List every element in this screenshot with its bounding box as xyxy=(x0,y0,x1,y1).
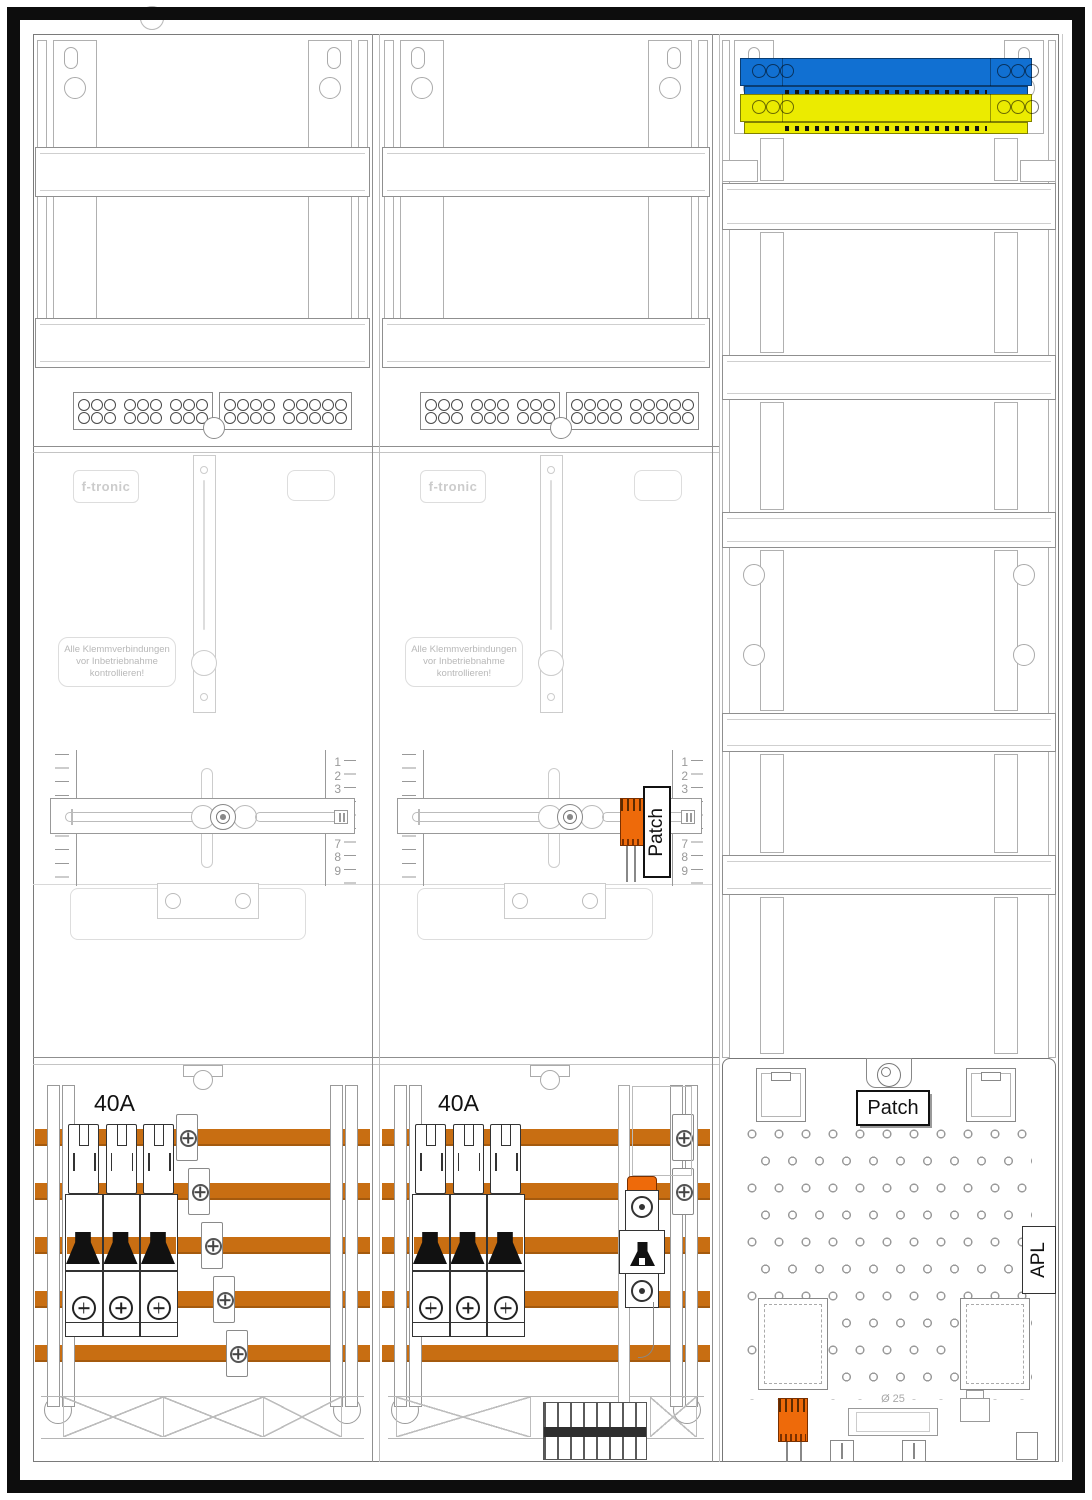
din-rail xyxy=(35,147,370,197)
terminal-group xyxy=(283,399,347,424)
diameter-label: Ø 25 xyxy=(848,1393,938,1406)
ruler-number: 3 xyxy=(674,783,688,796)
patch-label-apl-panel: Patch xyxy=(856,1090,930,1126)
busbar-terminal xyxy=(213,1276,235,1323)
terminal-hole xyxy=(263,399,275,411)
busbar-terminal xyxy=(188,1168,210,1215)
pe-terminal-bar-lip xyxy=(744,122,1028,134)
breaker-pole-divider xyxy=(102,1194,104,1337)
truss-post xyxy=(341,1397,342,1437)
ruler-number: 3 xyxy=(327,783,341,796)
rail-hole xyxy=(659,77,681,99)
pe-terminal-bar-dashes xyxy=(785,126,987,131)
connector-stripes xyxy=(779,1399,807,1412)
pe-terminal-bar-cap-line xyxy=(990,94,991,122)
warning-line: Alle Klemmverbindungen xyxy=(411,644,517,656)
terminal-hole xyxy=(224,412,236,424)
logo-box-field2: f-tronic xyxy=(420,470,486,503)
jaw-slot xyxy=(117,1124,127,1146)
terminal-hole xyxy=(471,399,483,411)
jaw-notch xyxy=(73,1153,75,1171)
right-margin-line xyxy=(1062,34,1063,1462)
device-screw-dot xyxy=(639,1204,645,1210)
section-line xyxy=(33,1057,719,1058)
slot-hole-small xyxy=(200,693,208,701)
breaker-pole-divider xyxy=(139,1194,141,1337)
jaw-notch xyxy=(495,1153,497,1171)
terminal-group xyxy=(425,399,463,424)
terminal-group xyxy=(224,399,275,424)
pe-terminal-bar-hole xyxy=(1011,100,1025,114)
neutral-terminal-bar-hole xyxy=(1025,64,1039,78)
brand-logo: f-tronic xyxy=(82,479,131,494)
slot-hole-big xyxy=(191,650,217,676)
terminal-hole xyxy=(309,412,321,424)
terminal-screw xyxy=(192,1184,209,1201)
corner-bracket xyxy=(1016,1432,1038,1460)
tab-hole xyxy=(193,1070,213,1090)
patch-label-text: Patch xyxy=(867,1097,918,1120)
terminal-hole xyxy=(451,399,463,411)
rail-slot xyxy=(327,47,341,69)
column-divider xyxy=(372,34,373,1462)
terminal-hole xyxy=(610,399,622,411)
jaw-notch xyxy=(94,1153,96,1171)
cabinet-drawing: f-tronic Alle Klemmverbindungen vor Inbe… xyxy=(0,0,1092,1500)
terminal-hole xyxy=(237,399,249,411)
pe-terminal-bar-hole xyxy=(752,100,766,114)
small-box xyxy=(960,1398,990,1422)
ruler-number: 8 xyxy=(674,851,688,864)
breaker-line xyxy=(65,1322,178,1323)
slider-circle xyxy=(233,805,257,829)
cap-line xyxy=(339,813,341,822)
mounting-rail xyxy=(760,138,784,181)
device-toggle-notch xyxy=(639,1258,645,1265)
mounting-rail xyxy=(760,402,784,510)
rail-hole xyxy=(64,77,86,99)
terminal-hole xyxy=(630,399,642,411)
bracket-hole xyxy=(235,893,251,909)
busbar-terminal xyxy=(176,1114,198,1161)
ruler-number: 7 xyxy=(674,838,688,851)
ruler-number: 1 xyxy=(327,756,341,769)
mounting-rail xyxy=(760,754,784,853)
din-rail xyxy=(722,855,1056,895)
slider-circle xyxy=(580,805,604,829)
terminal-hole xyxy=(263,412,275,424)
apl-label-text: APL xyxy=(1028,1242,1050,1278)
jaw-slot xyxy=(501,1124,511,1146)
terminal-hole xyxy=(137,412,149,424)
terminal-hole xyxy=(530,412,542,424)
column-divider xyxy=(379,34,380,1462)
section-line xyxy=(33,446,719,447)
device-screw-dot xyxy=(639,1288,645,1294)
slot-hole-small xyxy=(547,466,555,474)
terminal-group xyxy=(571,399,622,424)
terminal-hole xyxy=(682,412,694,424)
terminal-screw xyxy=(180,1130,197,1147)
rail-hole xyxy=(319,77,341,99)
pe-terminal-bar-hole xyxy=(780,100,794,114)
ruler-number: 9 xyxy=(674,865,688,878)
mounting-rail xyxy=(994,897,1018,1054)
jaw-notch xyxy=(420,1153,422,1171)
rail-slot xyxy=(667,47,681,69)
logo-box-field1: f-tronic xyxy=(73,470,139,503)
warning-line: vor Inbetriebnahme xyxy=(76,656,158,668)
busbar-terminal xyxy=(201,1222,223,1269)
tab-hole xyxy=(540,1070,560,1090)
bracket-hole xyxy=(512,893,528,909)
device-wire-box xyxy=(632,1086,692,1176)
breaker-pole-divider xyxy=(486,1194,488,1337)
terminal-hole xyxy=(597,399,609,411)
terminal-hole xyxy=(309,399,321,411)
terminal-hole xyxy=(250,412,262,424)
truss-post xyxy=(263,1397,264,1437)
breaker-screw xyxy=(109,1296,133,1320)
terminal-hole xyxy=(438,412,450,424)
terminal-hole xyxy=(322,399,334,411)
breaker-screw xyxy=(147,1296,171,1320)
cap-line xyxy=(690,813,692,822)
mounting-rail xyxy=(760,897,784,1054)
slider-tick xyxy=(71,809,73,825)
bracket-hole xyxy=(165,893,181,909)
truss-chord xyxy=(41,1438,364,1439)
slider-slot xyxy=(255,812,341,822)
pe-terminal-bar-hole xyxy=(766,100,780,114)
apl-label: APL xyxy=(1022,1226,1056,1294)
terminal-hole xyxy=(484,399,496,411)
terminal-block xyxy=(566,392,699,430)
din-rail xyxy=(722,183,1056,230)
slider-end-cap xyxy=(334,810,348,824)
warning-line: vor Inbetriebnahme xyxy=(423,656,505,668)
mounting-rail xyxy=(330,1085,343,1407)
connector-stripes xyxy=(621,799,643,811)
column-divider xyxy=(719,34,720,1462)
bracket-tab xyxy=(1020,160,1056,182)
terminal-hole xyxy=(250,399,262,411)
terminal-block xyxy=(219,392,352,430)
terminal-hole xyxy=(438,399,450,411)
terminal-screw xyxy=(676,1184,693,1201)
jaw-slot xyxy=(464,1124,474,1146)
terminal-hole xyxy=(656,399,668,411)
connector-wire xyxy=(626,846,628,882)
terminal-hole xyxy=(571,399,583,411)
slot-line xyxy=(550,480,552,630)
jaw-slot xyxy=(426,1124,436,1146)
terminal-hole xyxy=(335,412,347,424)
strip-screw-hole xyxy=(550,417,572,439)
connector-wire xyxy=(786,1442,788,1462)
jaw-slot xyxy=(154,1124,164,1146)
terminal-hole xyxy=(484,412,496,424)
neutral-terminal-bar-hole xyxy=(997,64,1011,78)
din-rail xyxy=(722,512,1056,548)
rail-hole xyxy=(743,564,765,586)
amp-rating-field1: 40A xyxy=(94,1090,194,1116)
patch-label-text: Patch xyxy=(646,808,668,857)
mounting-rail xyxy=(394,1085,407,1407)
deco-box-field1 xyxy=(287,470,335,501)
brand-logo: f-tronic xyxy=(429,479,478,494)
terminal-hole xyxy=(682,399,694,411)
terminal-group xyxy=(630,399,694,424)
panel-foot xyxy=(902,1440,926,1462)
terminal-group xyxy=(124,399,162,424)
busbar-terminal xyxy=(226,1330,248,1377)
square-opening-slot xyxy=(771,1072,791,1081)
warning-line: Alle Klemmverbindungen xyxy=(64,644,170,656)
terminal-hole xyxy=(124,412,136,424)
ruler-number: 2 xyxy=(674,770,688,783)
busbar xyxy=(382,1345,710,1362)
warning-box-field1: Alle Klemmverbindungen vor Inbetriebnahm… xyxy=(58,637,176,687)
ruler-number: 7 xyxy=(327,838,341,851)
foot-line xyxy=(913,1443,915,1459)
slot-hole-small xyxy=(200,466,208,474)
terminal-block xyxy=(420,392,560,430)
section-line xyxy=(33,452,719,453)
ruler-number: 9 xyxy=(327,865,341,878)
terminal-hole xyxy=(196,399,208,411)
terminal-hole xyxy=(497,399,509,411)
slider-circle xyxy=(220,814,226,820)
patch-connector xyxy=(620,798,644,846)
din-rail xyxy=(35,318,370,368)
terminal-strip xyxy=(543,1402,647,1460)
terminal-hole xyxy=(425,412,437,424)
truss-brace xyxy=(63,1397,163,1437)
terminal-hole xyxy=(497,412,509,424)
terminal-hole xyxy=(150,412,162,424)
terminal-hole xyxy=(322,412,334,424)
terminal-hole xyxy=(530,399,542,411)
bracket-hole xyxy=(582,893,598,909)
neutral-terminal-bar-hole xyxy=(752,64,766,78)
slider-slot-end xyxy=(140,6,164,30)
connector-wire xyxy=(634,846,636,882)
mounting-rail xyxy=(47,1085,60,1407)
mounting-rail xyxy=(760,232,784,353)
terminal-hole xyxy=(91,412,103,424)
terminal-group xyxy=(471,399,509,424)
rail-slot xyxy=(64,47,78,69)
terminal-hole xyxy=(91,399,103,411)
device-wire-arc xyxy=(638,1302,654,1358)
terminal-screw xyxy=(205,1238,222,1255)
jaw-notch xyxy=(148,1153,150,1171)
slider-slot xyxy=(412,812,544,822)
terminal-hole xyxy=(517,399,529,411)
terminal-hole xyxy=(137,399,149,411)
cap-line xyxy=(686,813,688,822)
jaw-notch xyxy=(132,1153,134,1171)
rail-hole xyxy=(411,77,433,99)
terminal-hole xyxy=(597,412,609,424)
section-line xyxy=(33,1064,719,1065)
terminal-hole xyxy=(296,399,308,411)
deco-box-field2 xyxy=(634,470,682,501)
connector-comb xyxy=(780,1434,806,1441)
jaw-slot xyxy=(79,1124,89,1146)
terminal-hole xyxy=(571,412,583,424)
terminal-hole xyxy=(150,399,162,411)
terminal-hole xyxy=(296,412,308,424)
strip-screw-hole xyxy=(203,417,225,439)
truss-post xyxy=(530,1397,531,1437)
slider-slot xyxy=(65,812,197,822)
connector-comb xyxy=(622,839,642,845)
terminal-hole xyxy=(656,412,668,424)
terminal-hole xyxy=(643,412,655,424)
terminal-hole xyxy=(283,412,295,424)
breaker-screw xyxy=(494,1296,518,1320)
jaw-notch xyxy=(458,1153,460,1171)
panel-handle-hook xyxy=(881,1067,891,1077)
neutral-terminal-bar-hole xyxy=(766,64,780,78)
terminal-hole xyxy=(104,399,116,411)
breaker-pole-divider xyxy=(449,1194,451,1337)
terminal-hole xyxy=(543,399,555,411)
pe-terminal-bar-hole xyxy=(1025,100,1039,114)
terminal-hole xyxy=(104,412,116,424)
rail-hole xyxy=(1013,564,1035,586)
terminal-hole xyxy=(471,412,483,424)
amp-rating-field2: 40A xyxy=(438,1090,538,1116)
breaker-clamp-jaw xyxy=(453,1124,484,1194)
slot-hole-big xyxy=(538,650,564,676)
breaker-line xyxy=(412,1270,525,1272)
terminal-hole xyxy=(335,399,347,411)
small-box-step xyxy=(966,1390,984,1399)
terminal-hole xyxy=(170,412,182,424)
terminal-hole xyxy=(584,412,596,424)
breaker-clamp-jaw xyxy=(68,1124,99,1194)
rail-slot xyxy=(411,47,425,69)
jaw-notch xyxy=(111,1153,113,1171)
terminal-hole xyxy=(224,399,236,411)
truss-post xyxy=(696,1397,697,1437)
terminal-block xyxy=(73,392,213,430)
terminal-hole xyxy=(78,412,90,424)
breaker-screw xyxy=(72,1296,96,1320)
mounting-rail xyxy=(345,1085,358,1407)
terminal-screw xyxy=(217,1292,234,1309)
jaw-notch xyxy=(516,1153,518,1171)
din-rail xyxy=(382,318,710,368)
ruler-number: 1 xyxy=(674,756,688,769)
din-rail xyxy=(382,147,710,197)
terminal-hole xyxy=(669,412,681,424)
breaker-clamp-jaw xyxy=(490,1124,521,1194)
terminal-group xyxy=(517,399,555,424)
jaw-notch xyxy=(441,1153,443,1171)
neutral-terminal-bar-hole xyxy=(780,64,794,78)
din-rail xyxy=(722,713,1056,752)
terminal-hole xyxy=(610,412,622,424)
ruler-number: 2 xyxy=(327,770,341,783)
terminal-hole xyxy=(517,412,529,424)
warning-box-field2: Alle Klemmverbindungen vor Inbetriebnahm… xyxy=(405,637,523,687)
terminal-hole xyxy=(584,399,596,411)
square-opening-inner xyxy=(764,1304,822,1384)
terminal-hole xyxy=(669,399,681,411)
foot-line xyxy=(841,1443,843,1459)
truss-brace xyxy=(263,1397,341,1437)
jaw-notch xyxy=(169,1153,171,1171)
mounting-rail xyxy=(994,754,1018,853)
slot-line xyxy=(203,480,205,630)
slider-tick xyxy=(418,809,420,825)
busbar xyxy=(35,1345,370,1362)
rail-hole xyxy=(1013,644,1035,666)
terminal-hole xyxy=(630,412,642,424)
breaker-clamp-jaw xyxy=(106,1124,137,1194)
mounting-rail xyxy=(994,138,1018,181)
terminal-screw xyxy=(230,1346,247,1363)
breaker-clamp-jaw xyxy=(143,1124,174,1194)
terminal-hole xyxy=(425,399,437,411)
slot-hole-small xyxy=(547,693,555,701)
terminal-hole xyxy=(170,399,182,411)
strip-band xyxy=(544,1427,646,1437)
neutral-terminal-bar-cap-line xyxy=(990,58,991,86)
square-opening-slot xyxy=(981,1072,1001,1081)
terminal-hole xyxy=(78,399,90,411)
connector-wire xyxy=(800,1442,802,1462)
breaker-line xyxy=(412,1322,525,1323)
patch-label-field2: Patch xyxy=(643,786,671,878)
terminal-group xyxy=(170,399,208,424)
breaker-line xyxy=(65,1270,178,1272)
truss-post xyxy=(650,1397,651,1437)
pe-terminal-bar-hole xyxy=(997,100,1011,114)
slider-bar xyxy=(50,798,355,834)
cap-line xyxy=(343,813,345,822)
neutral-terminal-bar-hole xyxy=(1011,64,1025,78)
terminal-hole xyxy=(124,399,136,411)
breaker-clamp-jaw xyxy=(415,1124,446,1194)
breaker-screw xyxy=(456,1296,480,1320)
terminal-group xyxy=(78,399,116,424)
terminal-hole xyxy=(183,399,195,411)
truss-brace xyxy=(396,1397,530,1437)
truss-post xyxy=(63,1397,64,1437)
terminal-hole xyxy=(183,412,195,424)
column-divider xyxy=(712,34,713,1462)
cable-bracket-inner xyxy=(856,1412,930,1432)
rail-hole xyxy=(743,644,765,666)
truss-brace xyxy=(163,1397,263,1437)
truss-post xyxy=(396,1397,397,1437)
din-rail xyxy=(722,355,1056,400)
panel-foot xyxy=(830,1440,854,1462)
jaw-notch xyxy=(479,1153,481,1171)
ruler-number: 8 xyxy=(327,851,341,864)
warning-line: kontrollieren! xyxy=(90,668,144,680)
mounting-rail xyxy=(994,402,1018,510)
terminal-hole xyxy=(283,399,295,411)
square-opening-inner xyxy=(966,1304,1024,1384)
terminal-hole xyxy=(237,412,249,424)
patch-connector xyxy=(778,1398,808,1442)
